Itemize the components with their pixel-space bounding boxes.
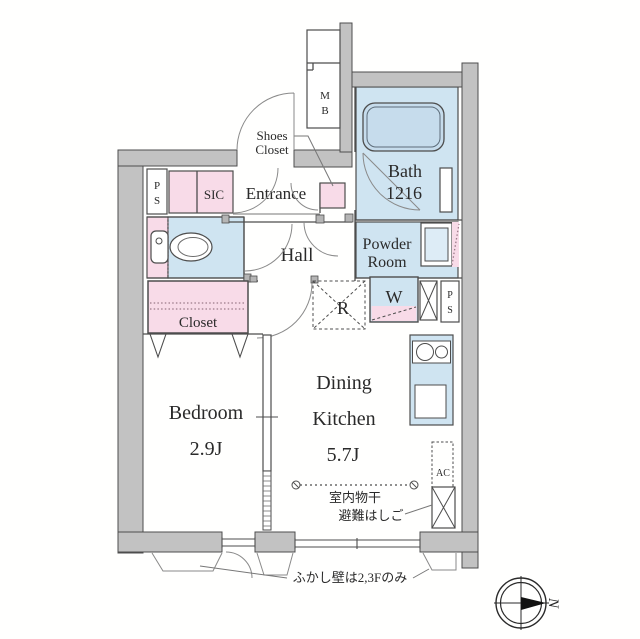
dk-size-label: 5.7J <box>327 444 360 466</box>
compass-needle <box>521 597 546 610</box>
shoes-closet-label-2: Closet <box>255 142 289 157</box>
sic-label: SIC <box>204 187 224 202</box>
sink <box>415 385 446 418</box>
ps-right-label-p: P <box>447 290 453 301</box>
closet: Closet <box>148 281 248 357</box>
shower-panel <box>440 168 452 212</box>
indoor-drying-label: 室内物干 <box>329 490 381 505</box>
hall: Hall <box>245 222 338 338</box>
refrigerator-label: R <box>337 298 349 318</box>
floor-plan-svg: M B P S SIC Entrance Shoes Closet Hall <box>0 0 640 639</box>
wall-right <box>462 63 478 568</box>
compass-north-label: N <box>545 597 561 609</box>
escape-ladder-label: 避難はしご <box>338 508 403 523</box>
escape-ladder-leader <box>405 505 432 514</box>
bedroom-size-label: 2.9J <box>190 438 223 460</box>
wall-bottom-right <box>420 532 478 552</box>
shoes-closet-box <box>320 183 345 208</box>
dk-annotations: AC 室内物干 避難はしご <box>292 442 455 528</box>
pillar <box>250 276 257 282</box>
bath-size-label: 1216 <box>386 183 422 203</box>
bathtub <box>363 103 444 151</box>
bedroom-label: Bedroom <box>169 402 244 424</box>
wall-bottom-pillar <box>255 532 295 552</box>
wall-mb-side <box>340 23 352 152</box>
powder-room-label-1: Powder <box>363 236 413 253</box>
closet-hanger-brackets <box>150 334 248 357</box>
ac-label: AC <box>436 468 450 479</box>
wall-top-mid <box>294 150 352 167</box>
drying-hook-right-dash <box>411 482 417 488</box>
furred-wall-outline-left <box>152 553 222 571</box>
bedroom: Bedroom 2.9J <box>169 335 278 530</box>
dk-window <box>295 538 420 549</box>
drying-hook-left-dash <box>293 482 299 488</box>
wall-top-left <box>118 150 237 166</box>
dk-door-arc <box>257 283 312 338</box>
wall-left <box>118 150 143 553</box>
ps-label-p: P <box>154 180 160 192</box>
toilet-tank <box>151 231 168 263</box>
washer-label: W <box>386 287 403 307</box>
wall-bottom-left <box>118 532 222 552</box>
dk-label-2: Kitchen <box>312 408 375 430</box>
wall-bath-top <box>352 72 478 87</box>
meter-box-label-b: B <box>321 105 328 117</box>
appliance-row: R W P S <box>313 277 459 329</box>
wall-note: ふかし壁は2,3Fのみ <box>152 552 456 585</box>
shoes-closet-label-1: Shoes <box>256 128 287 143</box>
bedroom-partition <box>263 335 271 471</box>
powder-room-label-2: Room <box>367 254 407 271</box>
pillar <box>316 215 324 223</box>
compass: N <box>494 576 561 630</box>
floor-plan: M B P S SIC Entrance Shoes Closet Hall <box>0 0 640 639</box>
pillar <box>345 214 353 222</box>
wall-note-label: ふかし壁は2,3Fのみ <box>293 570 407 585</box>
furred-wall-outline-mid <box>257 553 293 575</box>
ps-right-label-s: S <box>447 305 453 316</box>
ac-space <box>432 442 453 487</box>
bath-label: Bath <box>388 161 422 181</box>
furred-wall-arc <box>226 552 252 578</box>
closet-label: Closet <box>179 315 218 331</box>
meter-box-label-m: M <box>320 90 330 102</box>
ps-label-s: S <box>154 195 160 207</box>
stove <box>413 341 451 363</box>
furred-wall-outline-right <box>423 553 456 570</box>
windows <box>222 537 420 549</box>
dk-label-1: Dining <box>316 372 372 394</box>
pipe-shaft-top: P S <box>147 169 167 214</box>
pillar <box>222 215 229 223</box>
meter-box: M B <box>307 30 340 128</box>
bedroom-window <box>222 537 255 548</box>
sic-closet: SIC <box>169 171 233 213</box>
washbasin <box>425 228 448 261</box>
